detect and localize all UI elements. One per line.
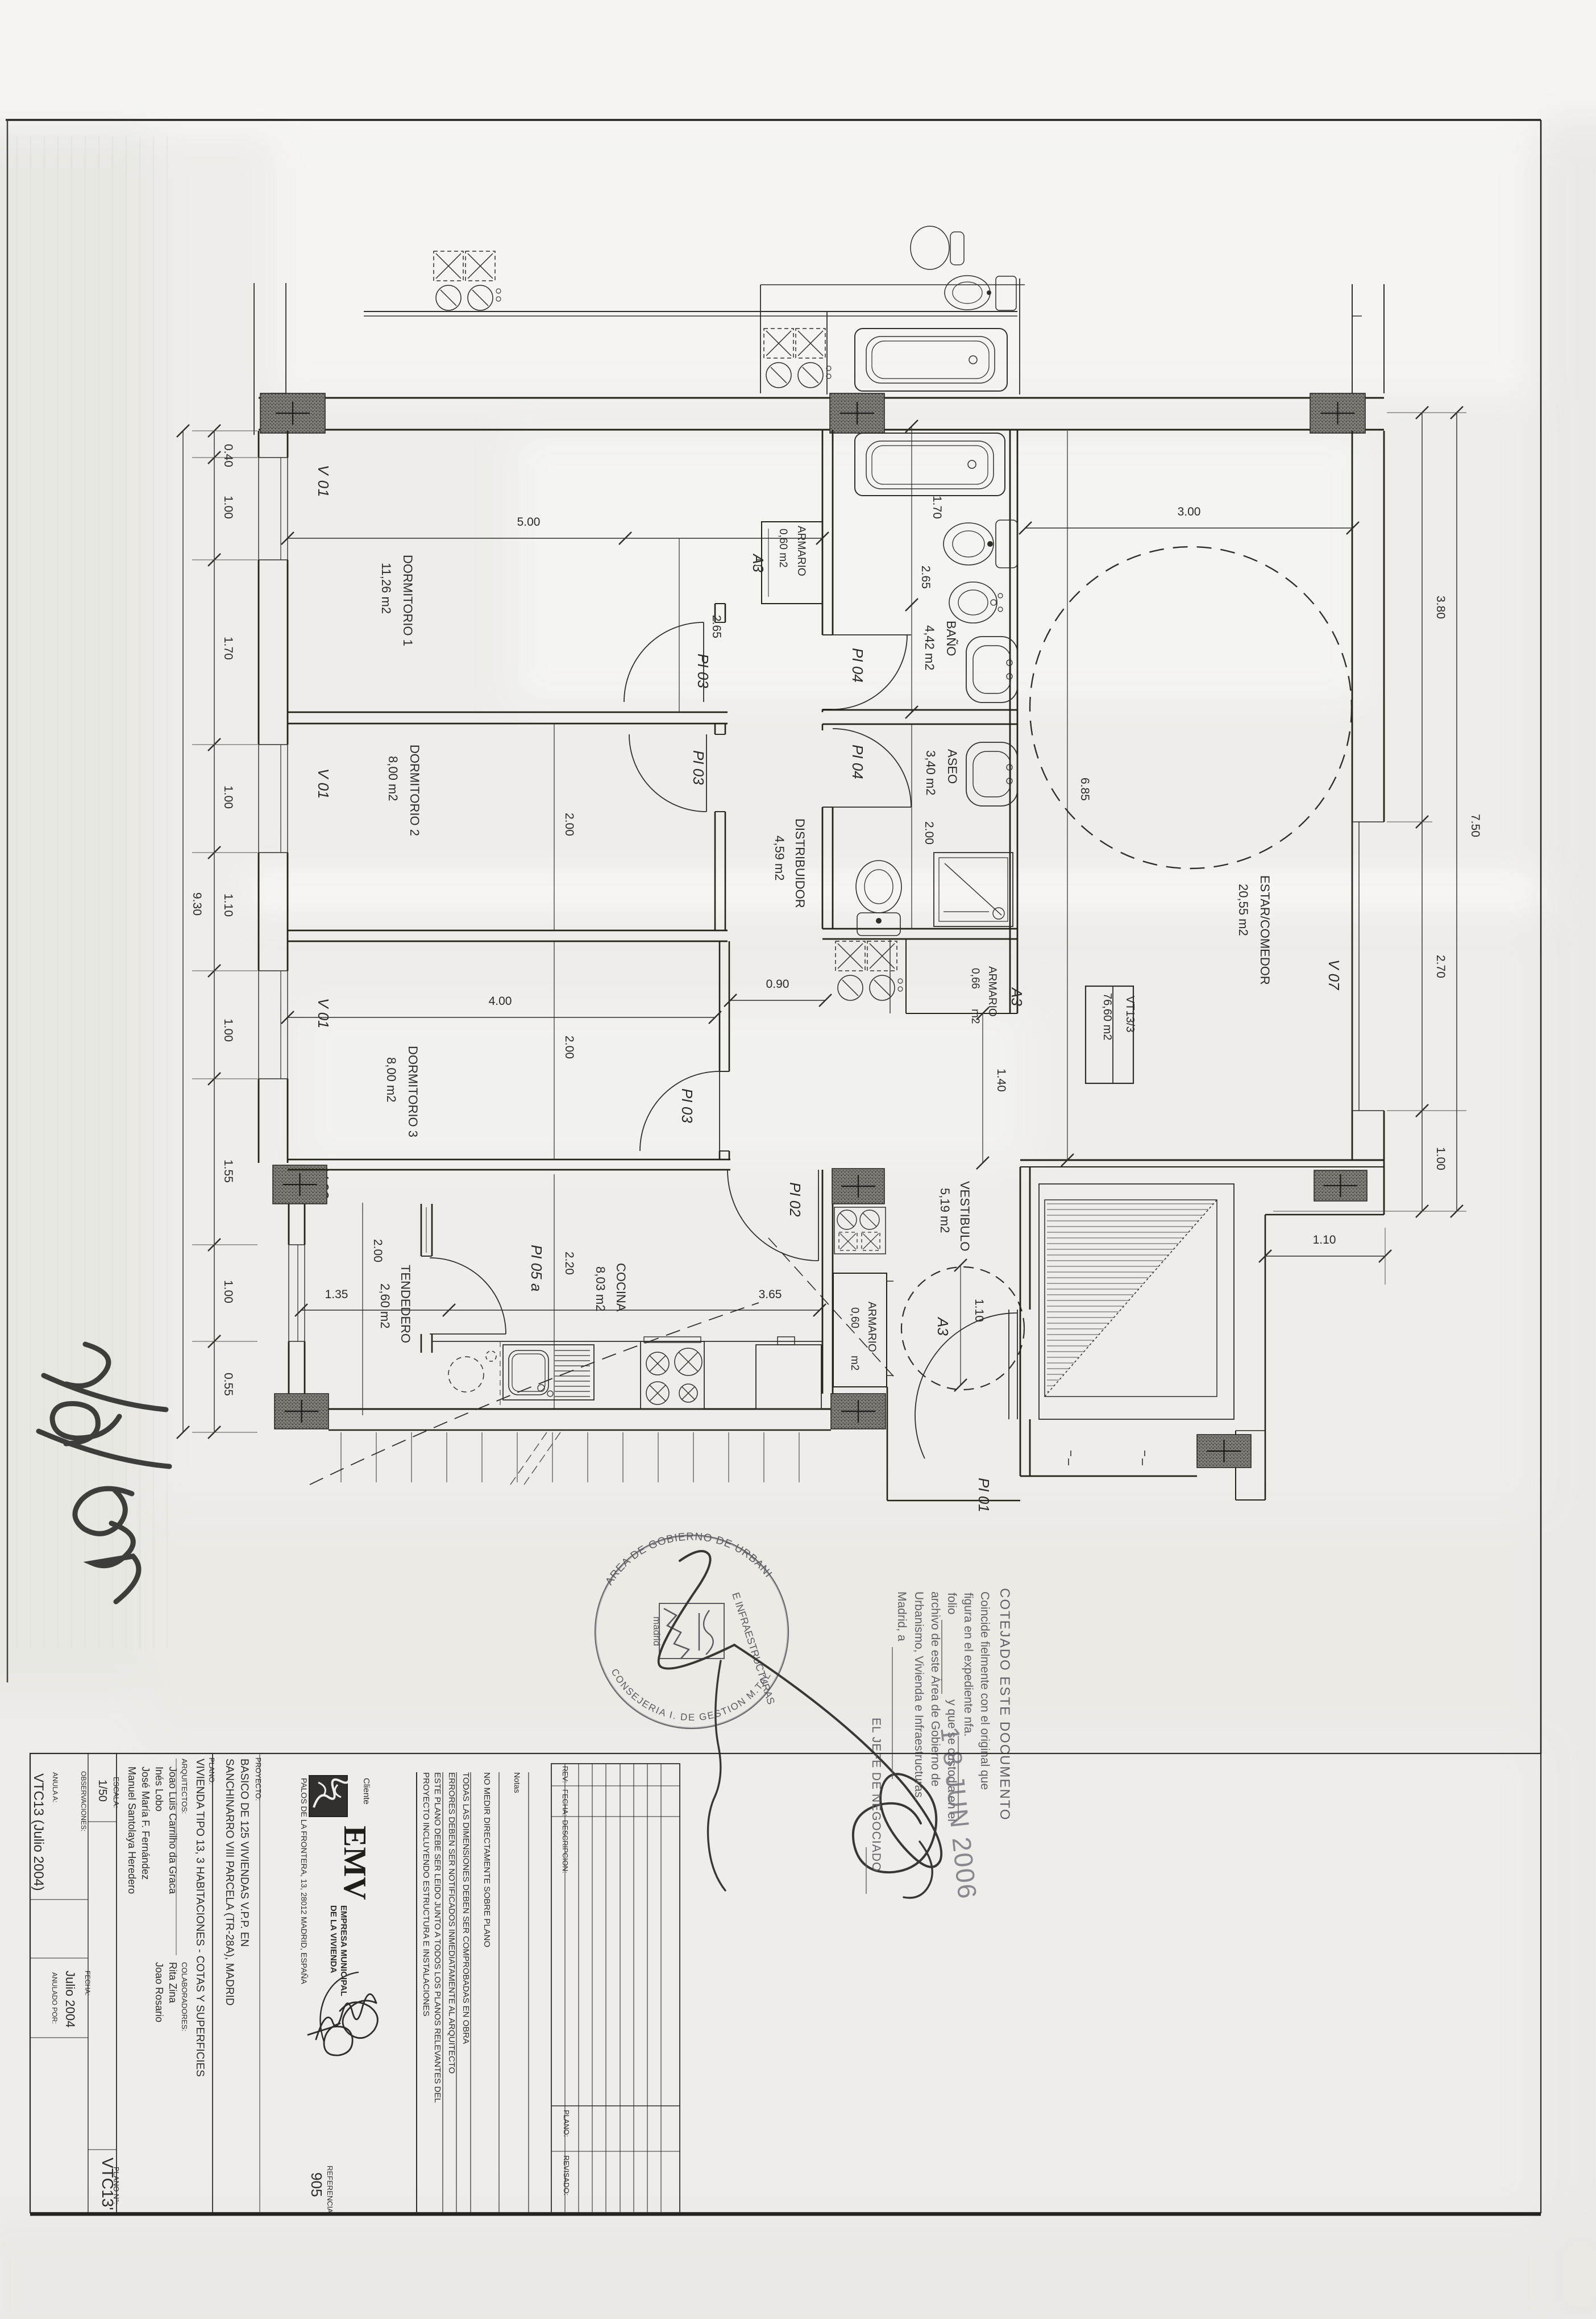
svg-text:8,03 m2: 8,03 m2 <box>593 1266 608 1312</box>
svg-text:0,60: 0,60 <box>849 1307 861 1328</box>
svg-text:PI 02: PI 02 <box>787 1182 804 1217</box>
svg-text:DORMITORIO 2: DORMITORIO 2 <box>408 745 422 836</box>
svg-text:11,26 m2: 11,26 m2 <box>379 563 393 614</box>
svg-text:ERRORES DEBEN SER NOTIFICADOS: ERRORES DEBEN SER NOTIFICADOS INMEDIATAM… <box>447 1772 456 2073</box>
svg-text:Notas: Notas <box>513 1772 522 1793</box>
svg-text:3,40 m2: 3,40 m2 <box>924 750 938 796</box>
svg-text:76,60 m2: 76,60 m2 <box>1101 993 1113 1040</box>
svg-text:José María F. Fernández: José María F. Fernández <box>140 1767 151 1880</box>
svg-text:Joao Rosario: Joao Rosario <box>153 1962 165 2022</box>
svg-text:0.55: 0.55 <box>222 1373 235 1396</box>
svg-text:1.70: 1.70 <box>930 496 944 519</box>
svg-text:PI 04: PI 04 <box>849 648 866 683</box>
svg-text:2.00: 2.00 <box>922 821 936 845</box>
svg-text:ARQUITECTOS:: ARQUITECTOS: <box>180 1759 189 1814</box>
svg-text:TENDEDERO: TENDEDERO <box>398 1265 413 1343</box>
svg-text:2.00: 2.00 <box>563 1036 576 1059</box>
svg-text:PI 05 a: PI 05 a <box>528 1245 545 1291</box>
svg-text:0.90: 0.90 <box>766 978 789 991</box>
svg-text:DESCRIPCION:: DESCRIPCION: <box>561 1820 570 1873</box>
svg-text:ESTE PLANO DEBE SER LEIDO JUNT: ESTE PLANO DEBE SER LEIDO JUNTO A TODOS … <box>433 1772 442 2103</box>
svg-text:7.50: 7.50 <box>1469 814 1482 837</box>
svg-text:2.65: 2.65 <box>919 566 932 589</box>
svg-text:REVISADO:: REVISADO: <box>562 2155 571 2196</box>
svg-text:1.10: 1.10 <box>222 893 235 917</box>
svg-text:1.00: 1.00 <box>222 786 235 809</box>
svg-text:V 01: V 01 <box>315 998 332 1029</box>
svg-text:VT13/3: VT13/3 <box>1124 996 1136 1032</box>
svg-text:V 01: V 01 <box>315 768 332 799</box>
svg-text:5.00: 5.00 <box>517 516 541 529</box>
svg-text:BASICO DE 125 VIVIENDAS V.P.P.: BASICO DE 125 VIVIENDAS V.P.P. EN <box>238 1759 250 1947</box>
svg-text:1.00: 1.00 <box>222 496 235 519</box>
svg-text:m2: m2 <box>849 1356 861 1370</box>
svg-text:TODAS LAS DIMENSIONES DEBEN SE: TODAS LAS DIMENSIONES DEBEN SER COMPROBA… <box>461 1772 471 2044</box>
svg-text:1.00: 1.00 <box>1434 1147 1447 1170</box>
svg-text:2.70: 2.70 <box>1434 955 1447 978</box>
svg-text:ASEO: ASEO <box>945 749 959 784</box>
svg-text:4,59 m2: 4,59 m2 <box>772 836 787 881</box>
svg-text:1.35: 1.35 <box>325 1288 348 1301</box>
svg-text:A3: A3 <box>1008 987 1025 1006</box>
svg-text:PI 03: PI 03 <box>695 654 712 688</box>
svg-text:0,66: 0,66 <box>969 968 981 989</box>
svg-text:A3: A3 <box>934 1316 951 1336</box>
svg-text:EMV: EMV <box>337 1826 372 1900</box>
svg-text:FECHA:: FECHA: <box>561 1789 570 1817</box>
svg-text:DORMITORIO 3: DORMITORIO 3 <box>406 1046 420 1137</box>
svg-text:COTEJADO ESTE DOCUMENTO: COTEJADO ESTE DOCUMENTO <box>997 1588 1012 1821</box>
svg-text:Julio 2004: Julio 2004 <box>63 1971 77 2027</box>
svg-text:Madrid, a: Madrid, a <box>895 1591 908 1641</box>
svg-text:VESTIBULO: VESTIBULO <box>958 1181 972 1251</box>
svg-text:0,60 m2: 0,60 m2 <box>777 529 789 568</box>
svg-text:Urbanismo, Vivienda e Infraest: Urbanismo, Vivienda e Infraestructuras. <box>912 1591 925 1801</box>
svg-text:1.55: 1.55 <box>222 1159 235 1183</box>
svg-text:1.10: 1.10 <box>972 1299 986 1322</box>
svg-text:ESTAR/COMEDOR: ESTAR/COMEDOR <box>1258 875 1272 985</box>
svg-text:1.70: 1.70 <box>222 637 235 660</box>
svg-text:V 01: V 01 <box>315 465 332 498</box>
svg-text:Inés Lobo: Inés Lobo <box>153 1767 165 1811</box>
svg-text:8,00 m2: 8,00 m2 <box>386 756 400 801</box>
svg-text:EL JEFE DE NEGOCIADO: EL JEFE DE NEGOCIADO <box>870 1718 883 1872</box>
svg-text:PROYECTO:: PROYECTO: <box>254 1757 263 1801</box>
svg-text:1.00: 1.00 <box>222 1019 235 1042</box>
svg-text:COLABORADORES:: COLABORADORES: <box>180 1962 189 2031</box>
svg-text:1.40: 1.40 <box>995 1069 1008 1092</box>
svg-text:VTC13': VTC13' <box>99 2158 117 2210</box>
svg-text:figura en el expediente nfa.: figura en el expediente nfa. <box>962 1593 975 1736</box>
svg-text:VTC13 (Julio 2004): VTC13 (Julio 2004) <box>31 1773 46 1891</box>
svg-text:4.00: 4.00 <box>489 995 512 1008</box>
svg-text:PI 01: PI 01 <box>975 1478 992 1512</box>
svg-text:Joao Luis Carrilho da Graca: Joao Luis Carrilho da Graca <box>167 1767 178 1894</box>
svg-text:ANULADO POR:: ANULADO POR: <box>51 1972 59 2024</box>
svg-text:REFERENCIA:: REFERENCIA: <box>326 2166 334 2215</box>
svg-text:folio: folio <box>945 1593 958 1615</box>
svg-text:NO MEDIR DIRECTAMENTE SOBRE PL: NO MEDIR DIRECTAMENTE SOBRE PLANO <box>482 1772 492 1947</box>
svg-text:VIVIENDA TIPO 13, 3 HABITACION: VIVIENDA TIPO 13, 3 HABITACIONES - COTAS… <box>194 1759 206 2077</box>
svg-text:PLANO:: PLANO: <box>207 1757 216 1785</box>
svg-text:PI 03: PI 03 <box>690 750 707 785</box>
svg-text:PROYECTO INCLUYENDO ESTRUCTURA: PROYECTO INCLUYENDO ESTRUCTURA E INSTALA… <box>421 1772 431 2017</box>
svg-text:1.10: 1.10 <box>1313 1233 1336 1246</box>
svg-text:EMPRESA MUNICIPAL: EMPRESA MUNICIPAL <box>339 1905 348 1996</box>
svg-text:ESCALA:: ESCALA: <box>112 1777 120 1808</box>
svg-text:COCINA: COCINA <box>614 1263 628 1312</box>
svg-text:PI 04: PI 04 <box>849 745 866 779</box>
svg-text:2.65: 2.65 <box>710 615 723 638</box>
svg-text:3.65: 3.65 <box>759 1288 782 1301</box>
svg-text:1/50: 1/50 <box>96 1780 109 1802</box>
svg-text:Coincide fielmente con el orig: Coincide fielmente con el original que <box>978 1591 991 1790</box>
svg-text:SANCHINARRO VIII PARCELA (TR-2: SANCHINARRO VIII PARCELA (TR-28A), MADRI… <box>223 1759 235 2006</box>
svg-text:REV:: REV: <box>561 1766 570 1783</box>
svg-text:BAÑO: BAÑO <box>944 621 958 656</box>
svg-text:1.00: 1.00 <box>222 1280 235 1303</box>
svg-text:FECHA:: FECHA: <box>84 1971 92 1996</box>
svg-text:8,00 m2: 8,00 m2 <box>384 1057 398 1103</box>
svg-text:DORMITORIO 1: DORMITORIO 1 <box>401 555 415 646</box>
svg-text:PALOS DE LA FRONTERA, 13, 2801: PALOS DE LA FRONTERA, 13, 28012 MADRID, … <box>300 1778 309 1984</box>
svg-text:6.85: 6.85 <box>1078 778 1091 801</box>
svg-text:A3: A3 <box>750 553 767 572</box>
svg-text:Rita Zina: Rita Zina <box>167 1962 178 2004</box>
svg-text:4,42 m2: 4,42 m2 <box>922 625 937 671</box>
svg-text:3.80: 3.80 <box>1434 596 1447 619</box>
svg-text:OBSERVACIONES:: OBSERVACIONES: <box>80 1771 88 1831</box>
svg-text:ARMARIO: ARMARIO <box>795 526 807 576</box>
svg-text:DISTRIBUIDOR: DISTRIBUIDOR <box>793 818 807 908</box>
svg-text:2.20: 2.20 <box>563 1252 576 1275</box>
svg-text:madrid: madrid <box>651 1616 662 1646</box>
svg-text:PLANO:: PLANO: <box>562 2110 571 2137</box>
svg-text:20,55 m2: 20,55 m2 <box>1236 884 1250 936</box>
svg-text:Cliente: Cliente <box>361 1778 371 1805</box>
svg-text:ANULA A:: ANULA A: <box>51 1772 59 1802</box>
svg-text:V 07: V 07 <box>1325 959 1343 991</box>
svg-text:9.30: 9.30 <box>190 892 203 916</box>
svg-text:2,60 m2: 2,60 m2 <box>378 1283 392 1329</box>
svg-text:5,19 m2: 5,19 m2 <box>938 1188 952 1233</box>
svg-text:PI 03: PI 03 <box>679 1088 696 1123</box>
svg-text:DE LA VIVIENDA: DE LA VIVIENDA <box>329 1905 338 1973</box>
svg-text:3.00: 3.00 <box>1178 505 1201 518</box>
svg-text:0.40: 0.40 <box>222 444 235 467</box>
svg-text:905: 905 <box>308 2172 325 2197</box>
svg-text:2.00: 2.00 <box>371 1239 384 1262</box>
svg-text:ARMARIO: ARMARIO <box>866 1302 878 1352</box>
svg-text:2.00: 2.00 <box>563 813 576 836</box>
svg-text:Manuel Santolaya Heredero: Manuel Santolaya Heredero <box>126 1767 138 1894</box>
